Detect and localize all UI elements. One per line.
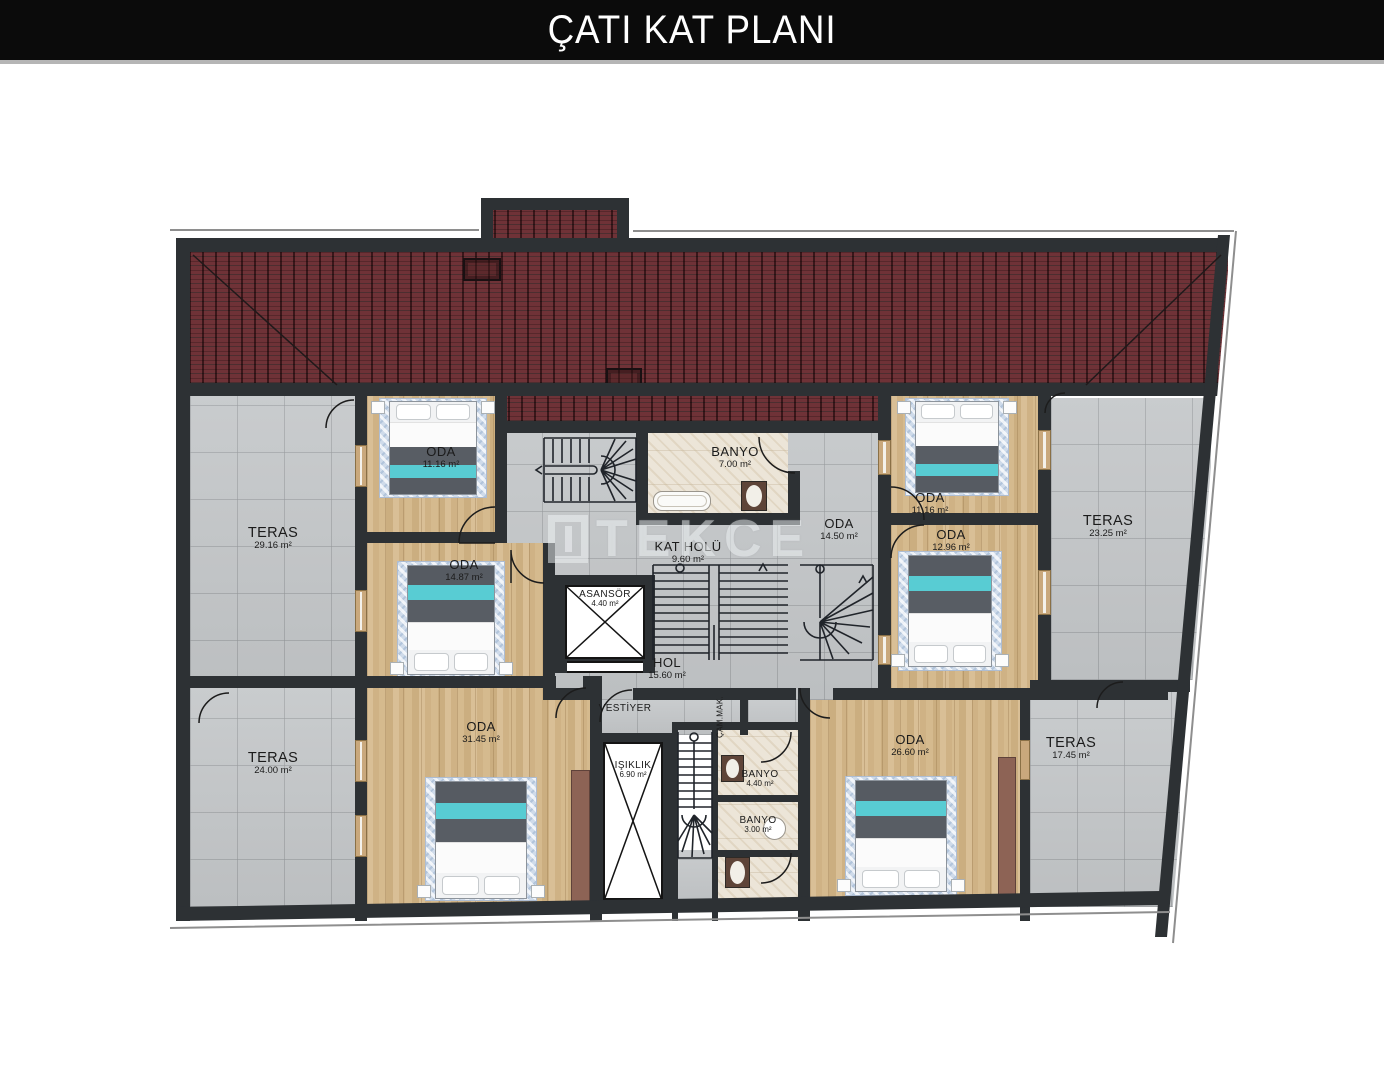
wall (543, 688, 596, 700)
window (1038, 570, 1051, 615)
room-label-banyo-mid: BANYO4.40 m² (741, 769, 778, 789)
room-label-oda-ml: ODA14.87 m² (445, 558, 483, 583)
room-label-oda-c: ODA14.50 m² (820, 517, 858, 542)
wall (190, 676, 556, 688)
room-label-teras-bl: TERAS24.00 m² (248, 750, 298, 777)
elevator-sill (567, 661, 643, 673)
page-title: ÇATI KAT PLANI (548, 8, 837, 53)
room-label-teras-br: TERAS17.45 m² (1046, 735, 1096, 762)
room-label-oda-tr: ODA11.16 m² (912, 491, 949, 516)
nightstand (499, 662, 513, 675)
room-label-vestiyer: VESTİYER (599, 703, 652, 714)
nightstand (390, 662, 404, 675)
room-label-teras-tl: TERAS29.16 m² (248, 525, 298, 552)
nightstand (417, 885, 431, 898)
room-label-banyo-low: BANYO3.00 m² (739, 815, 776, 835)
nightstand (995, 654, 1009, 667)
teras-bl-floor (190, 688, 355, 907)
title-bar: ÇATI KAT PLANI (0, 0, 1384, 64)
bed (915, 401, 999, 493)
watermark-text: TEKCE (596, 509, 812, 569)
toilet (725, 857, 750, 888)
wall (712, 730, 718, 921)
bathtub (653, 491, 711, 511)
roof-window-icon (463, 258, 501, 281)
nightstand (481, 401, 495, 414)
window (355, 445, 367, 487)
window (355, 815, 367, 857)
pillow (396, 404, 431, 420)
wall (583, 676, 602, 688)
watermark-logo-icon (548, 515, 588, 563)
room-label-cam-mak: ÇAM.MAK. (717, 696, 726, 738)
room-label-asansor: ASANSÖR4.40 m² (579, 589, 631, 609)
bed (908, 555, 992, 667)
wall (633, 688, 796, 700)
wardrobe (571, 770, 590, 905)
wall (1020, 692, 1030, 921)
room-label-isiklik: IŞIKLIK6.90 m² (615, 760, 652, 780)
room-label-oda-tl: ODA11.16 m² (423, 445, 460, 470)
floor-plan: TERAS29.16 m² TERAS24.00 m² TERAS23.25 m… (163, 195, 1238, 955)
wall (176, 383, 1228, 396)
bed (855, 780, 947, 892)
wardrobe (998, 757, 1016, 897)
nightstand (891, 654, 905, 667)
floor-plan-page: ÇATI KAT PLANI (0, 0, 1384, 1080)
nightstand (951, 879, 965, 892)
wall (672, 722, 798, 730)
room-label-oda-br: ODA26.60 m² (891, 733, 929, 758)
wall (617, 198, 629, 242)
nightstand (531, 885, 545, 898)
bed (435, 781, 527, 899)
window (1020, 740, 1030, 780)
nightstand (837, 879, 851, 892)
nightstand (897, 401, 911, 414)
wall (798, 688, 810, 921)
wall (718, 850, 798, 857)
room-label-teras-tr: TERAS23.25 m² (1083, 513, 1133, 540)
wall (718, 795, 798, 802)
nightstand (371, 401, 385, 414)
pillow (436, 404, 471, 420)
wall (495, 396, 507, 543)
window (878, 440, 891, 475)
wall (176, 238, 1228, 252)
window (355, 590, 367, 632)
stairs-bottom (678, 732, 712, 858)
nightstand (1003, 401, 1017, 414)
wall (672, 730, 678, 921)
room-label-banyo-top: BANYO7.00 m² (711, 445, 759, 470)
teras-br-floor (1030, 692, 1180, 907)
toilet (741, 481, 767, 511)
watermark: TEKCE (548, 509, 812, 569)
wall (367, 532, 507, 543)
wall (495, 421, 878, 433)
room-label-oda-mr: ODA12.96 m² (932, 528, 970, 553)
wall (481, 198, 629, 210)
roof-main (176, 252, 1228, 383)
room-label-oda-bl: ODA31.45 m² (462, 720, 500, 745)
wall (1030, 680, 1190, 692)
wall (176, 238, 190, 921)
wall (1038, 383, 1051, 680)
window (1038, 430, 1051, 470)
window (878, 635, 891, 665)
room-label-hol: HOL15.60 m² (648, 656, 686, 681)
window (355, 740, 367, 782)
